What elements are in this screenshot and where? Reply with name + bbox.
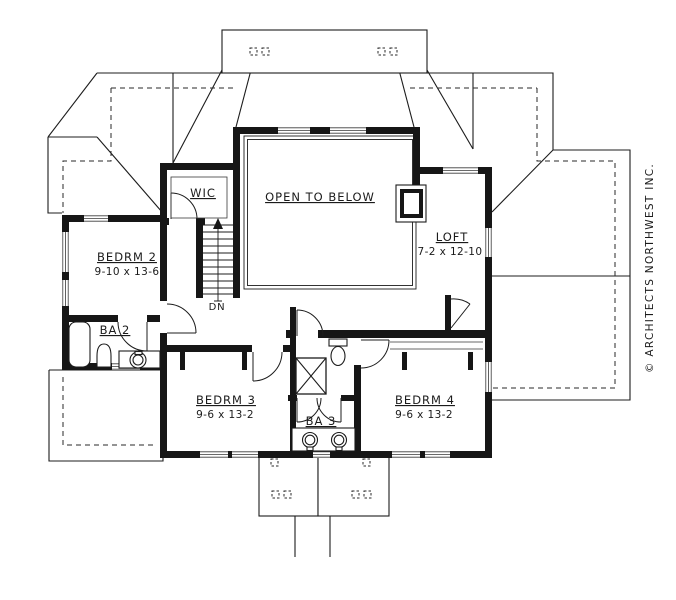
- dormer-roof: [318, 456, 389, 516]
- window: [392, 451, 420, 458]
- label-bedrm2: BEDRM 2: [97, 250, 157, 264]
- toilet: [97, 344, 111, 367]
- bathtub: [69, 322, 90, 367]
- roof-valley-line: [399, 70, 414, 127]
- floor-plan: OPEN TO BELOW WIC BEDRM 2 9-10 x 13-6 LO…: [0, 0, 676, 600]
- wall: [160, 333, 167, 458]
- labels: OPEN TO BELOW WIC BEDRM 2 9-10 x 13-6 LO…: [95, 163, 656, 428]
- wall: [445, 295, 451, 332]
- wall: [147, 315, 160, 322]
- wall: [286, 330, 296, 338]
- window: [313, 451, 330, 458]
- wall: [233, 127, 240, 298]
- window: [84, 215, 108, 222]
- window: [200, 451, 228, 458]
- window: [425, 451, 450, 458]
- dormer-roof: [222, 30, 427, 73]
- bedrm2-door: [160, 301, 196, 333]
- roof-valley-line: [173, 70, 222, 163]
- wall: [160, 163, 167, 225]
- wall: [233, 127, 420, 134]
- front-dormer: [222, 30, 427, 73]
- wall: [288, 395, 297, 401]
- label-bedrm4: BEDRM 4: [395, 393, 455, 407]
- ba3-shower: [296, 358, 326, 394]
- wall: [341, 395, 361, 401]
- floor-plan-drawing: OPEN TO BELOW WIC BEDRM 2 9-10 x 13-6 LO…: [0, 0, 676, 600]
- ba2-sink: [119, 351, 160, 368]
- wall: [160, 163, 240, 170]
- roof-overhang: [63, 377, 157, 445]
- window: [232, 451, 258, 458]
- label-open-to-below: OPEN TO BELOW: [265, 190, 375, 204]
- roof-valley-line: [427, 70, 473, 149]
- wall: [62, 215, 167, 222]
- window: [62, 280, 69, 306]
- window: [485, 362, 492, 392]
- window: [485, 228, 492, 257]
- window: [443, 167, 478, 174]
- wall: [413, 127, 420, 187]
- label-bedrm4-dims: 9-6 x 13-2: [395, 409, 453, 421]
- bedrm3-closet: [180, 352, 247, 370]
- label-loft-dims: 7-2 x 12-10: [418, 246, 483, 258]
- bedrm4-closet: [390, 342, 483, 370]
- window: [278, 127, 310, 134]
- dormer-roof: [259, 456, 318, 516]
- wall: [318, 330, 485, 338]
- label-loft: LOFT: [436, 230, 469, 244]
- roof-valley-line: [97, 137, 162, 212]
- opening-edge: [244, 136, 416, 289]
- chimney: [396, 185, 426, 222]
- roof-line: [49, 370, 163, 461]
- label-stairs-dn: DN: [209, 302, 226, 313]
- label-wic: WIC: [190, 186, 216, 200]
- stairs: [203, 218, 233, 301]
- label-ba3: BA 3: [306, 414, 337, 428]
- label-ba2: BA 2: [100, 323, 131, 337]
- stairwell-opening-railing: [244, 136, 416, 289]
- wall: [195, 218, 205, 225]
- wall: [167, 345, 252, 352]
- stair-direction-line: [214, 224, 222, 301]
- bedrm4-door: [361, 340, 389, 368]
- roof-valley-line: [236, 70, 251, 127]
- roof-overhang: [63, 88, 111, 213]
- wall: [196, 218, 203, 298]
- loft-door: [451, 299, 470, 328]
- copyright-text: © ARCHITECTS NORTHWEST INC.: [644, 163, 656, 373]
- window: [330, 127, 366, 134]
- label-bedrm3: BEDRM 3: [196, 393, 256, 407]
- roof-hip-line: [492, 150, 553, 212]
- wall: [62, 315, 118, 322]
- wall: [160, 222, 167, 301]
- window: [62, 232, 69, 272]
- roof-line: [48, 137, 62, 213]
- label-bedrm3-dims: 9-6 x 13-2: [196, 409, 254, 421]
- ba3-toilet: [329, 339, 347, 366]
- bedrm3-door: [252, 345, 283, 381]
- opening-edge: [248, 140, 413, 286]
- stair-direction-arrow: [213, 218, 223, 229]
- wall: [485, 167, 492, 458]
- ba3-vanity: [292, 428, 355, 451]
- roof-hip-line: [48, 73, 97, 137]
- rear-dormers: [259, 456, 389, 557]
- label-bedrm2-dims: 9-10 x 13-6: [95, 266, 160, 278]
